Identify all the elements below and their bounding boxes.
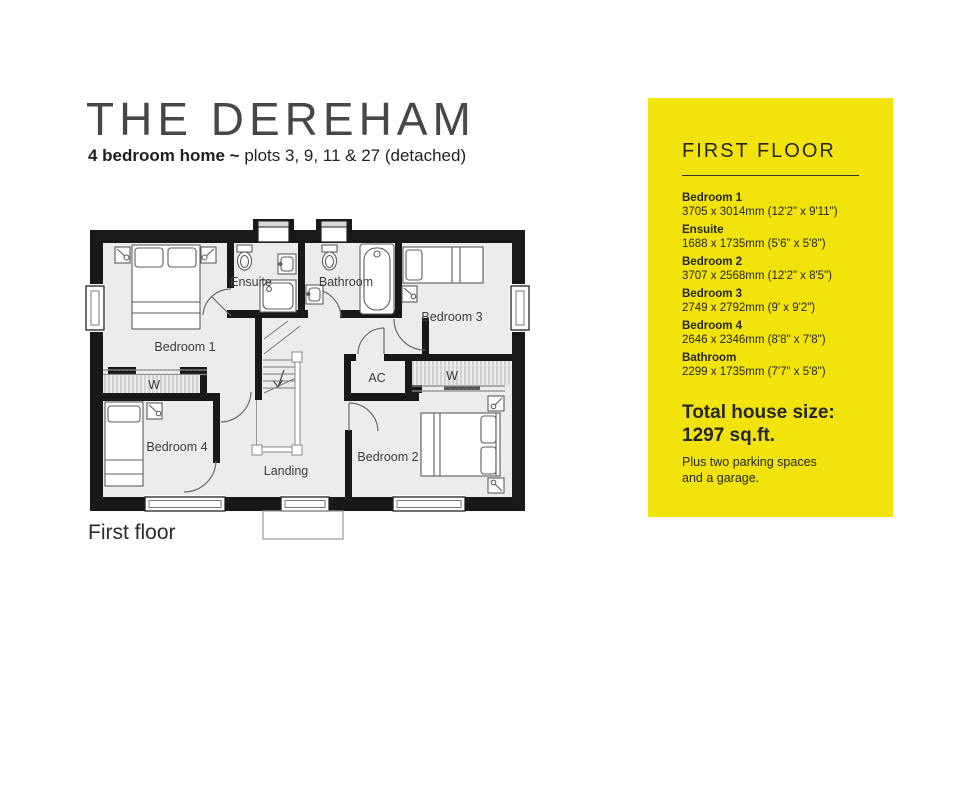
room-dims: 3705 x 3014mm (12'2" x 9'11") bbox=[682, 205, 859, 219]
total-label: Total house size: bbox=[682, 401, 859, 424]
brochure-page: { "header": { "title": "THE DEREHAM", "s… bbox=[0, 0, 980, 799]
bathroom-toilet bbox=[322, 245, 337, 270]
window-bottom-landing bbox=[281, 495, 329, 513]
label-ensuite: Ensuite bbox=[230, 275, 272, 289]
room-name: Bedroom 3 bbox=[682, 287, 859, 301]
label-bedroom3: Bedroom 3 bbox=[421, 310, 482, 324]
porch-outline bbox=[263, 511, 343, 539]
label-wardrobe-left: W bbox=[148, 378, 160, 392]
total-house-size: Total house size: 1297 sq.ft. Plus two p… bbox=[682, 401, 859, 486]
window-right bbox=[509, 284, 530, 332]
room-dims: 2646 x 2346mm (8'8" x 7'8") bbox=[682, 333, 859, 347]
window-left bbox=[85, 284, 106, 332]
room-dims: 3707 x 2568mm (12'2" x 8'5") bbox=[682, 269, 859, 283]
room-dimension-list: Bedroom 1 3705 x 3014mm (12'2" x 9'11") … bbox=[682, 191, 859, 379]
window-bottom-bedroom4 bbox=[145, 495, 225, 513]
page-subtitle: 4 bedroom home ~ plots 3, 9, 11 & 27 (de… bbox=[88, 146, 466, 166]
label-bedroom2: Bedroom 2 bbox=[357, 450, 418, 464]
room-item: Bathroom 2299 x 1735mm (7'7" x 5'8") bbox=[682, 351, 859, 379]
window-bottom-bedroom2 bbox=[393, 495, 465, 513]
wardrobe-right-hatch bbox=[412, 361, 512, 385]
label-landing: Landing bbox=[264, 464, 309, 478]
room-dims: 2299 x 1735mm (7'7" x 5'8") bbox=[682, 365, 859, 379]
room-name: Ensuite bbox=[682, 223, 859, 237]
room-item: Ensuite 1688 x 1735mm (5'6" x 5'8") bbox=[682, 223, 859, 251]
room-dims: 2749 x 2792mm (9' x 9'2") bbox=[682, 301, 859, 315]
room-item: Bedroom 2 3707 x 2568mm (12'2" x 8'5") bbox=[682, 255, 859, 283]
label-bedroom4: Bedroom 4 bbox=[146, 440, 207, 454]
label-bedroom1: Bedroom 1 bbox=[154, 340, 215, 354]
plan-caption: First floor bbox=[88, 521, 176, 545]
parking-note: Plus two parking spaces and a garage. bbox=[682, 454, 832, 486]
ensuite-toilet bbox=[237, 245, 252, 270]
room-item: Bedroom 3 2749 x 2792mm (9' x 9'2") bbox=[682, 287, 859, 315]
room-name: Bedroom 1 bbox=[682, 191, 859, 205]
room-dims: 1688 x 1735mm (5'6" x 5'8") bbox=[682, 237, 859, 251]
panel-heading-rule bbox=[682, 175, 859, 176]
label-wardrobe-right: W bbox=[446, 369, 458, 383]
info-panel: FIRST FLOOR Bedroom 1 3705 x 3014mm (12'… bbox=[648, 98, 893, 517]
label-bathroom: Bathroom bbox=[319, 275, 373, 289]
panel-heading: FIRST FLOOR bbox=[682, 140, 859, 163]
label-ac: AC bbox=[368, 371, 385, 385]
subtitle-bold: 4 bedroom home ~ bbox=[88, 146, 240, 165]
page-title: THE DEREHAM bbox=[86, 92, 476, 146]
room-name: Bedroom 4 bbox=[682, 319, 859, 333]
room-item: Bedroom 4 2646 x 2346mm (8'8" x 7'8") bbox=[682, 319, 859, 347]
total-value: 1297 sq.ft. bbox=[682, 424, 859, 447]
room-name: Bedroom 2 bbox=[682, 255, 859, 269]
dormer-window-ensuite bbox=[253, 219, 294, 243]
ensuite-sink bbox=[278, 254, 296, 274]
room-item: Bedroom 1 3705 x 3014mm (12'2" x 9'11") bbox=[682, 191, 859, 219]
floor-plan: Bedroom 1 Ensuite Bathroom Bedroom 3 W W… bbox=[84, 212, 530, 546]
dormer-window-bathroom bbox=[316, 219, 352, 243]
subtitle-rest: plots 3, 9, 11 & 27 (detached) bbox=[240, 146, 467, 165]
room-name: Bathroom bbox=[682, 351, 859, 365]
